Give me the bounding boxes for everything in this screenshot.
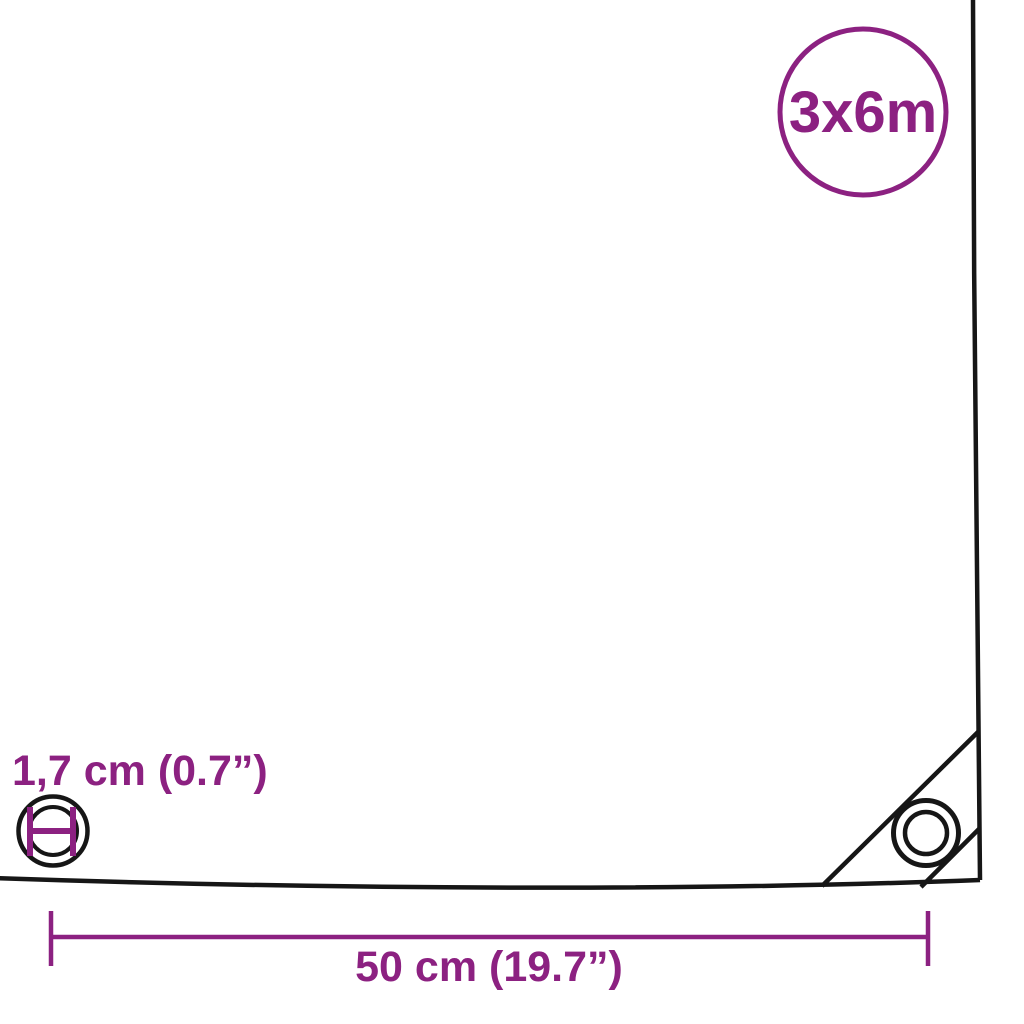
tarp-bottom-edge: [0, 878, 980, 888]
grommet-diameter-label: 1,7 cm (0.7”): [12, 747, 268, 795]
diagram-canvas: 1,7 cm (0.7”) 50 cm (19.7”) 3x6m: [0, 0, 1024, 1024]
tarp-right-edge: [973, 0, 980, 880]
size-badge: 3x6m: [780, 29, 946, 195]
grommet-spacing-label: 50 cm (19.7”): [355, 943, 623, 991]
corner-fold: [822, 732, 979, 887]
size-badge-label: 3x6m: [789, 80, 937, 145]
tarpaulin-dimension-diagram: 1,7 cm (0.7”) 50 cm (19.7”) 3x6m: [0, 0, 1024, 1024]
grommet-diameter-icon: [19, 797, 88, 866]
corner-fold-line-outer: [822, 732, 978, 886]
